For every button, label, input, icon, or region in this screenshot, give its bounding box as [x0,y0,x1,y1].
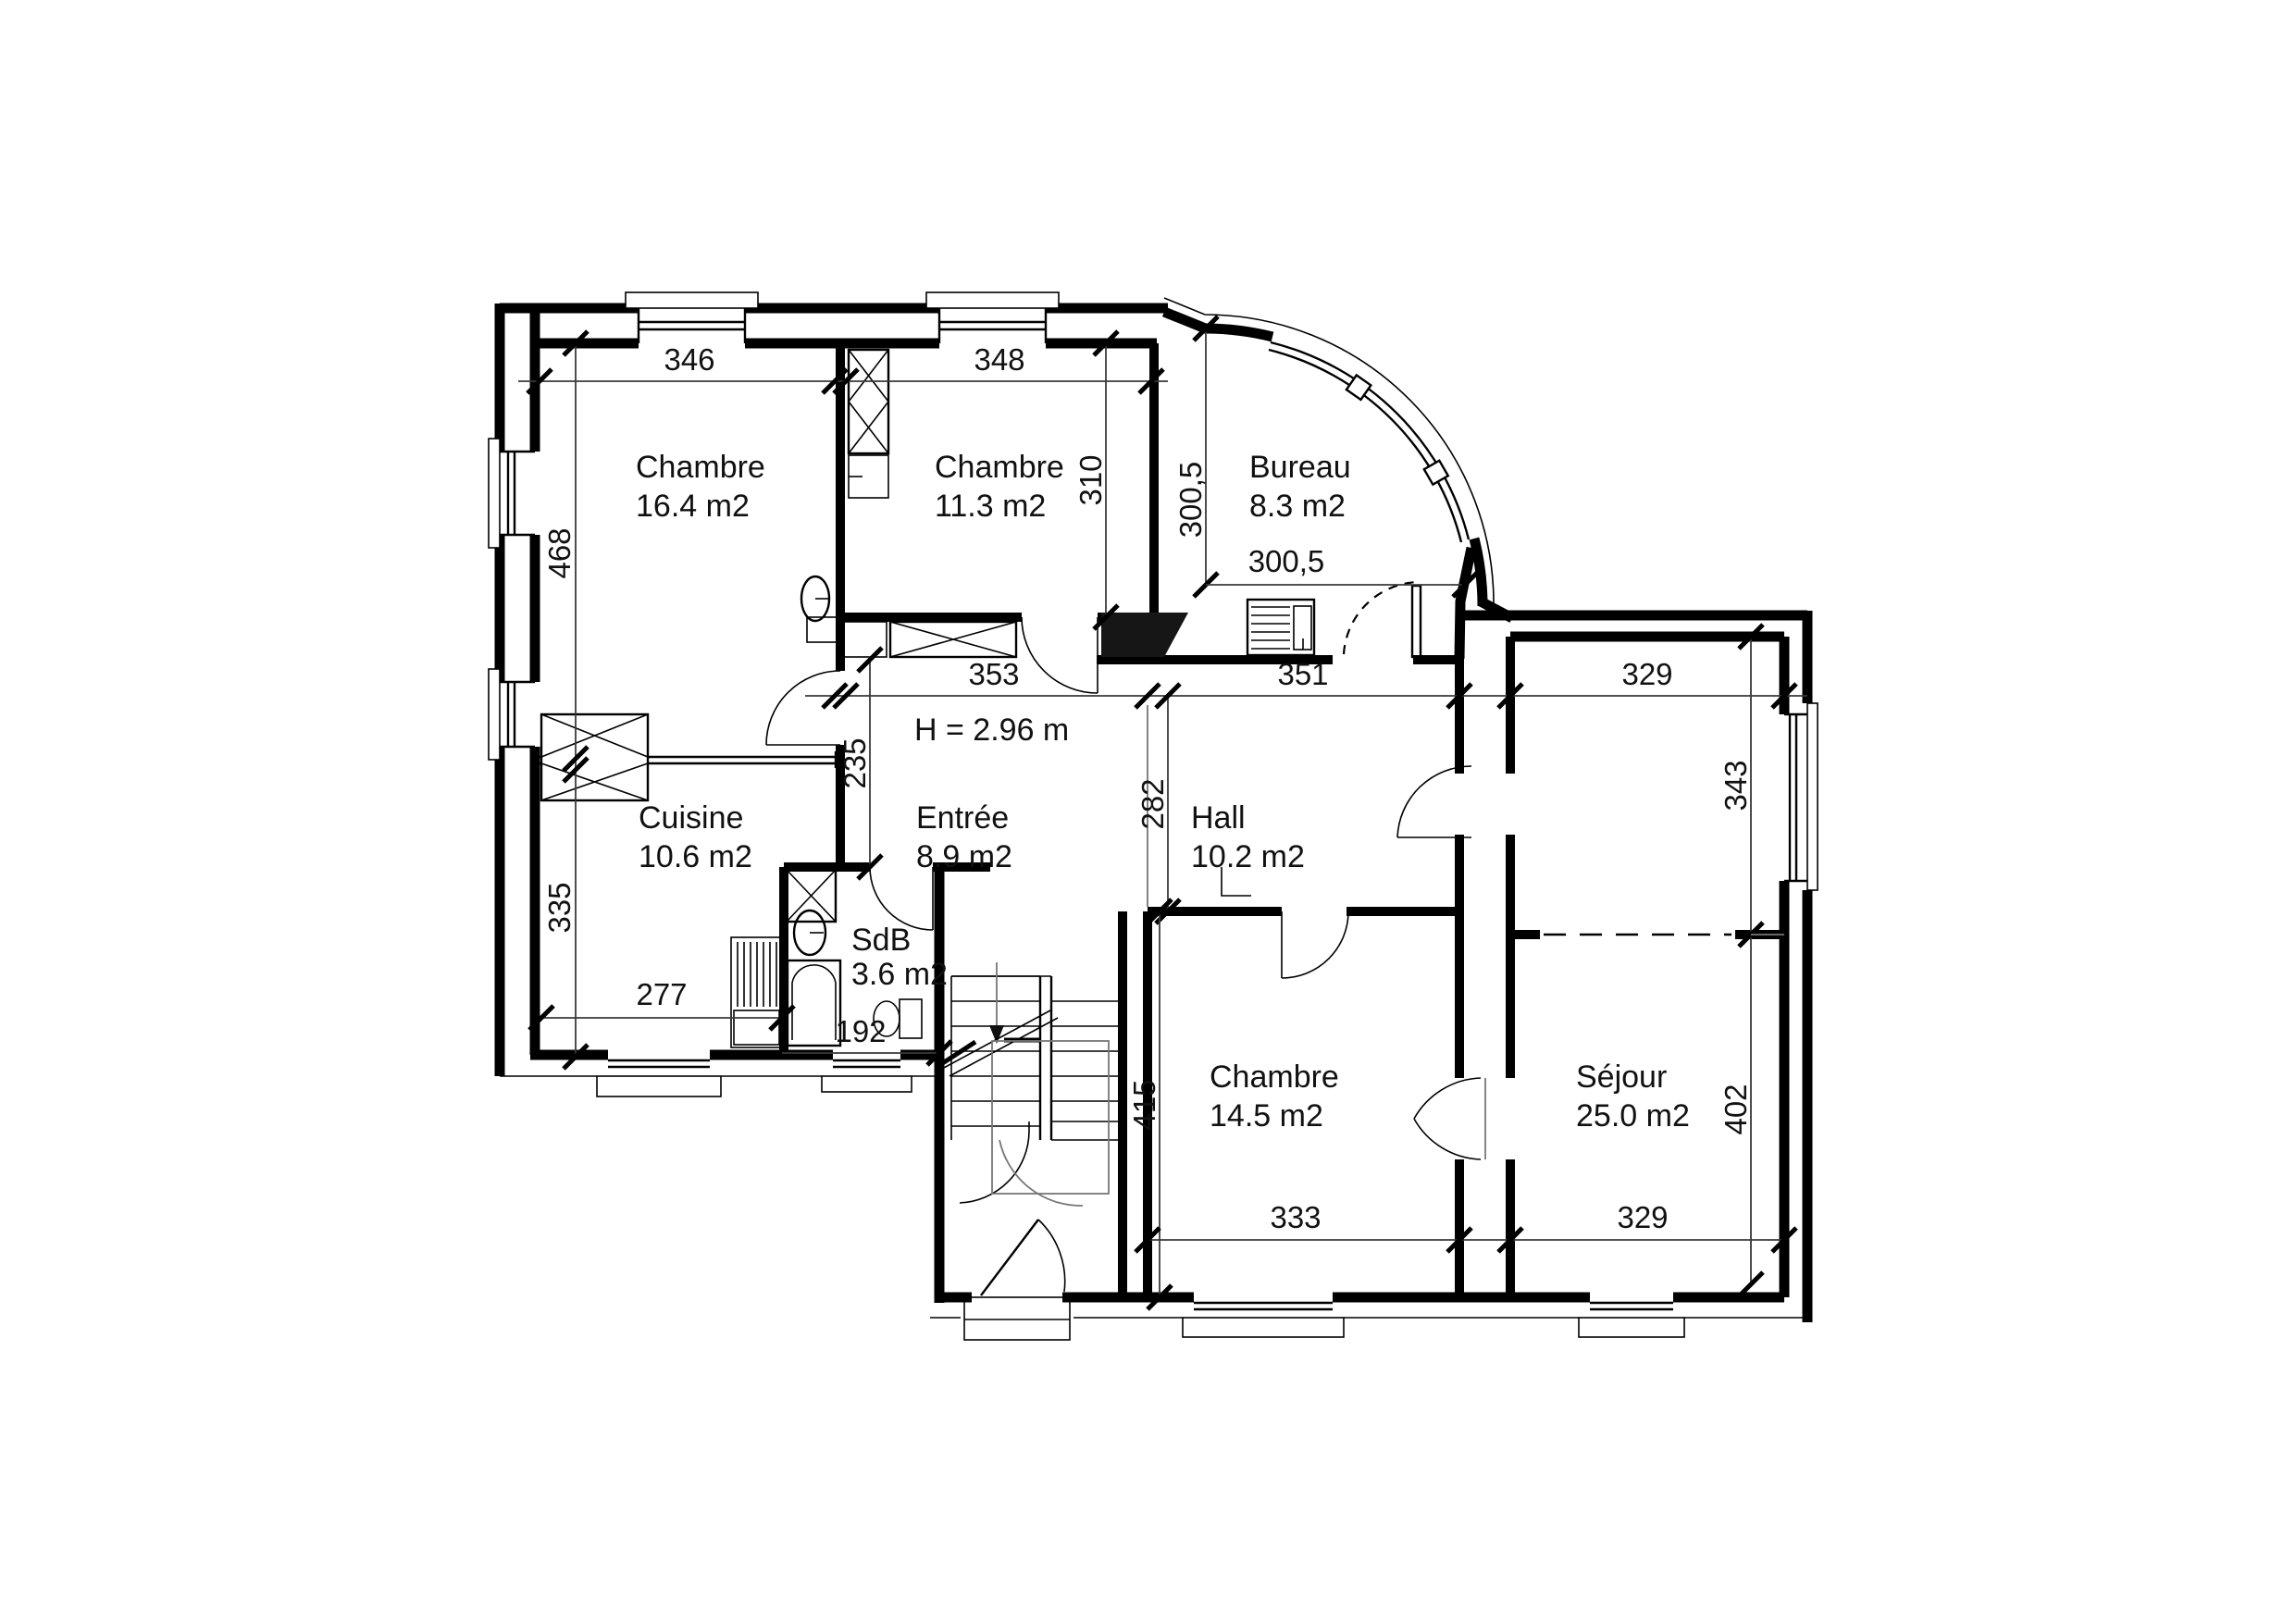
room-label-sdb-area: 3.6 m2 [851,957,948,992]
room-label-chambre2-name: Chambre [935,450,1064,485]
room-label-entree-name: Entrée [916,800,1009,836]
window-sill [597,1076,721,1096]
window-sill [489,669,500,760]
ceiling-height-note: H = 2.96 m [914,712,1069,748]
room-label-entree-area: 8.9 m2 [916,839,1012,874]
dim-235: 235 [838,737,872,788]
dim-348: 348 [974,342,1024,377]
room-label-chambre1-area: 16.4 m2 [636,489,750,524]
curve-mullion [1347,375,1371,399]
washbasin-icon [801,576,839,642]
room-label-hall-area: 10.2 m2 [1191,839,1305,874]
dim-335: 335 [542,882,577,933]
bathtub-icon [788,960,840,1046]
dressing-closet-icon [844,622,1016,657]
dim-415: 415 [1127,1079,1161,1130]
dim-300-5-v: 300,5 [1173,462,1208,539]
stairs-icon [938,962,1120,1206]
entrance-porch [964,1297,1070,1340]
dim-351: 351 [1277,657,1328,691]
room-label-chambre3-area: 14.5 m2 [1210,1098,1323,1134]
room-label-cuisine-area: 10.6 m2 [639,839,752,874]
room-label-chambre1-name: Chambre [636,450,765,485]
dim-300-5-h: 300,5 [1248,544,1325,578]
dim-343: 343 [1719,760,1753,811]
floor-plan-drawing: Chambre 16.4 m2 Chambre 11.3 m2 Bureau 8… [0,0,2296,1623]
room-label-cuisine-name: Cuisine [639,800,743,836]
room-label-sejour-name: Séjour [1576,1059,1667,1095]
window-sill [1183,1318,1344,1337]
room-label-chambre2-area: 11.3 m2 [935,489,1046,524]
room-label-sdb-name: SdB [851,923,911,958]
dim-346: 346 [664,342,714,377]
labels: Chambre 16.4 m2 Chambre 11.3 m2 Bureau 8… [542,342,1753,1234]
window-sill [1579,1318,1684,1337]
floor-plan-page: Chambre 16.4 m2 Chambre 11.3 m2 Bureau 8… [0,0,2296,1623]
room-label-hall-name: Hall [1191,800,1246,836]
dim-333: 333 [1270,1200,1321,1234]
dim-468: 468 [542,527,577,578]
dim-329-bottom: 329 [1617,1200,1668,1234]
chimney-block [1101,613,1188,657]
window-sill [1807,703,1818,890]
bureau-door-jamb [1412,586,1421,657]
dim-310: 310 [1074,454,1108,505]
room-label-chambre3-name: Chambre [1210,1059,1339,1095]
room-label-bureau-area: 8.3 m2 [1249,489,1346,524]
closet-icon [541,714,648,800]
dim-353: 353 [968,657,1019,691]
window-sill [626,292,758,308]
kitchen-counter-icon [731,937,782,1047]
room-label-bureau-name: Bureau [1249,450,1351,485]
desk-icon [1247,600,1314,655]
dim-282: 282 [1136,778,1170,829]
room-label-sejour-area: 25.0 m2 [1576,1098,1690,1134]
toilet-icon [900,999,922,1038]
dim-277: 277 [636,977,687,1011]
dim-329-top: 329 [1621,657,1672,691]
window-sill [926,292,1059,308]
window-sill [822,1076,912,1092]
window-sill [489,439,500,548]
dim-192: 192 [835,1014,886,1048]
dim-402: 402 [1719,1084,1753,1134]
